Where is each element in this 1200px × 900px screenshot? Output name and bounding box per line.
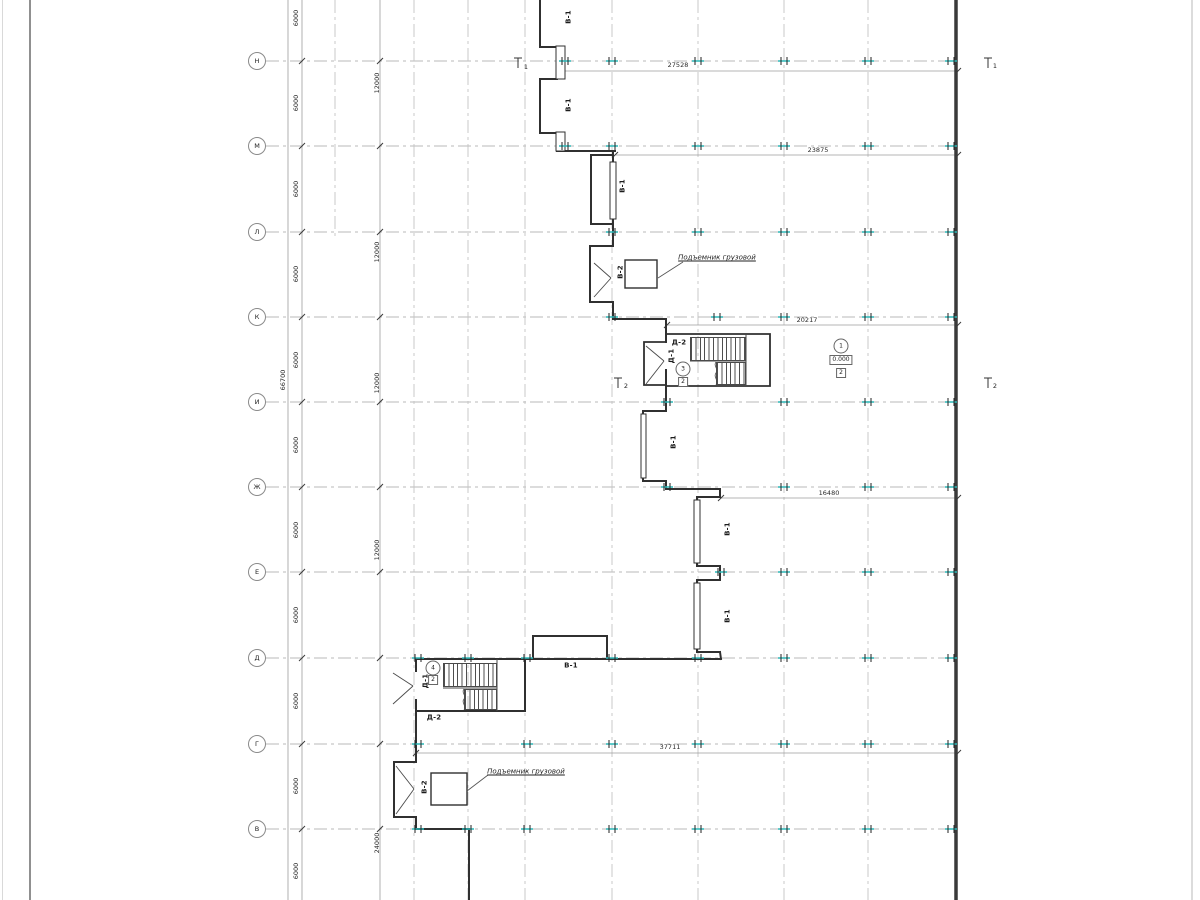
section-1-label: 1 [524,64,528,71]
sheet-frame [3,0,1193,900]
lift-shaft-top [625,260,657,288]
axis-bubble-v: В [248,820,266,838]
lift-mark-b2: В-2 [618,265,625,279]
room-number-bubble: 1 [834,339,849,354]
dim-12000: 12000 [374,242,381,263]
axis-bubble-n: Н [248,52,266,70]
dimension-tick-layer [299,58,961,832]
dim-12000: 12000 [374,373,381,394]
axis-bubble-g: Г [248,735,266,753]
dim-6000: 6000 [293,863,300,880]
window-glyphs [556,46,700,649]
dim-6000: 6000 [293,95,300,112]
window-mark-b1: В-1 [620,179,627,193]
axis-label: Ж [253,483,260,491]
freight-lift-note: Подъемник грузовой [487,769,565,776]
section-2-label: 2 [993,383,997,390]
door-mark-d2: Д-2 [427,715,442,722]
room-number: 4 [431,665,435,672]
window-mark-b1: В-1 [725,522,732,536]
floor-plan-sheet: Н М Л К И Ж Е Д Г В 6000 6000 6000 6000 … [0,0,1200,900]
window-mark-b1: В-1 [671,435,678,449]
floor-type-mark: 2 [678,377,688,387]
axis-bubble-i: И [248,393,266,411]
stair-flight-lower-k [716,362,746,385]
stair-flight-upper-k [690,337,746,361]
axis-label: Н [255,57,260,65]
axis-bubble-zh: Ж [248,478,266,496]
window-mark-b1: В-1 [566,10,573,24]
axis-label: Г [255,740,259,748]
floor-type-mark: 2 [428,675,438,685]
walls [394,0,770,900]
axis-label: Л [255,228,260,236]
dim-6000: 6000 [293,181,300,198]
dim-66700: 66700 [280,370,287,391]
stair-flight-lower-d [464,689,497,710]
axis-label: В [255,825,259,833]
dim-12000: 12000 [374,540,381,561]
room-number-bubble: 3 [676,362,691,377]
plan-linework [0,0,1200,900]
door-swings [393,263,664,814]
axis-label: Д [254,654,259,662]
axis-bubble-d: Д [248,649,266,667]
floor-type-mark: 2 [836,368,846,378]
dim-20217: 20217 [797,317,818,324]
door-mark-d2: Д-2 [672,340,687,347]
section-marks [514,58,992,388]
grid-axes-layer [266,0,952,900]
freight-lift-note: Подъемник грузовой [678,255,756,262]
dim-6000: 6000 [293,437,300,454]
axis-label: И [255,398,260,406]
axis-bubble-e: Е [248,563,266,581]
dimension-chains [288,0,380,900]
dim-6000: 6000 [293,778,300,795]
column-tick-layer [412,57,957,833]
dim-12000: 12000 [374,73,381,94]
lift-shafts [431,260,657,805]
window-mark-b1: В-1 [566,98,573,112]
dim-24000: 24000 [374,833,381,854]
dim-37711: 37711 [660,744,681,751]
lift-mark-b2: В-2 [422,780,429,794]
dim-23875: 23875 [808,147,829,154]
dim-6000: 6000 [293,607,300,624]
axis-label: М [254,142,260,150]
room-number: 3 [681,366,685,373]
dim-6000: 6000 [293,10,300,27]
axis-label: Е [255,568,259,576]
dim-16480: 16480 [819,490,840,497]
window-mark-b1: В-1 [564,663,578,670]
window-mark-b1: В-1 [725,609,732,623]
section-1-label: 1 [993,63,997,70]
room-number-bubble: 4 [426,661,441,676]
axis-label: К [255,313,260,321]
lift-shaft-bottom [431,773,467,805]
section-2-label: 2 [624,383,628,390]
axis-bubble-k: К [248,308,266,326]
dimension-lines [416,71,958,753]
room-number: 1 [839,343,843,350]
axis-bubble-m: М [248,137,266,155]
dim-6000: 6000 [293,693,300,710]
axis-bubble-l: Л [248,223,266,241]
door-mark-d1: Д-1 [669,349,676,364]
dim-6000: 6000 [293,266,300,283]
dim-27528: 27528 [668,62,689,69]
stair-flight-upper-d [443,663,497,687]
dim-6000: 6000 [293,522,300,539]
elevation-mark: 0.000 [829,355,852,365]
dim-6000: 6000 [293,352,300,369]
